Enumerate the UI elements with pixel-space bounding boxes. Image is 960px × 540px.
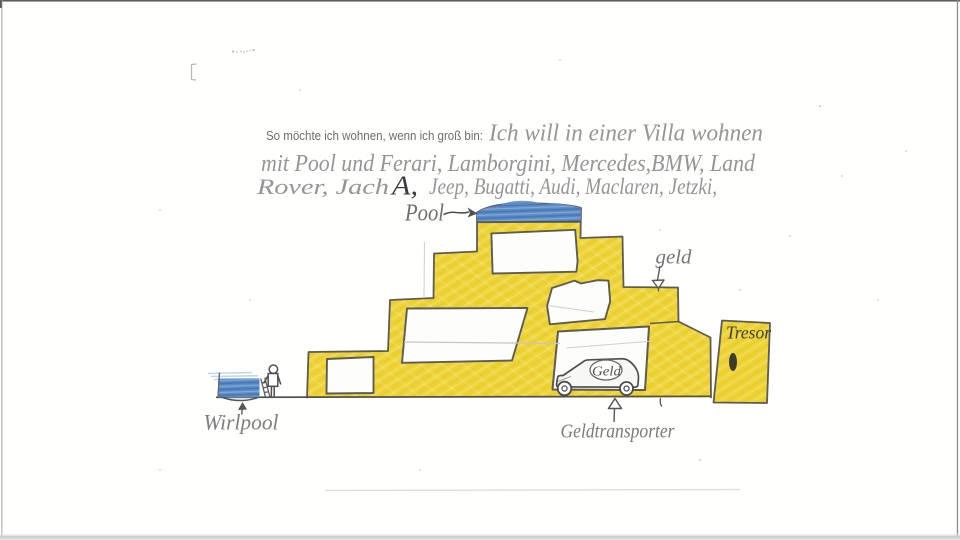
- svg-text:Geld: Geld: [592, 364, 621, 379]
- svg-text:Geldtransporter: Geldtransporter: [561, 421, 675, 443]
- svg-text:Rover, Jach: Rover, Jach: [256, 174, 389, 199]
- svg-text:Pool: Pool: [404, 201, 444, 227]
- svg-text:Tresor: Tresor: [726, 323, 772, 343]
- svg-text:Ich will in einer Villa wohnen: Ich will in einer Villa wohnen: [488, 121, 763, 147]
- svg-text:So möchte ich wohnen, wenn ich: So möchte ich wohnen, wenn ich groß bin:: [266, 128, 483, 143]
- svg-text:geld: geld: [656, 247, 693, 269]
- svg-text:Jeep, Bugatti, Audi, Maclaren,: Jeep, Bugatti, Audi, Maclaren, Jetzki,: [429, 174, 717, 199]
- svg-text:Wirlpool: Wirlpool: [204, 410, 279, 435]
- svg-text:A,: A,: [390, 171, 418, 201]
